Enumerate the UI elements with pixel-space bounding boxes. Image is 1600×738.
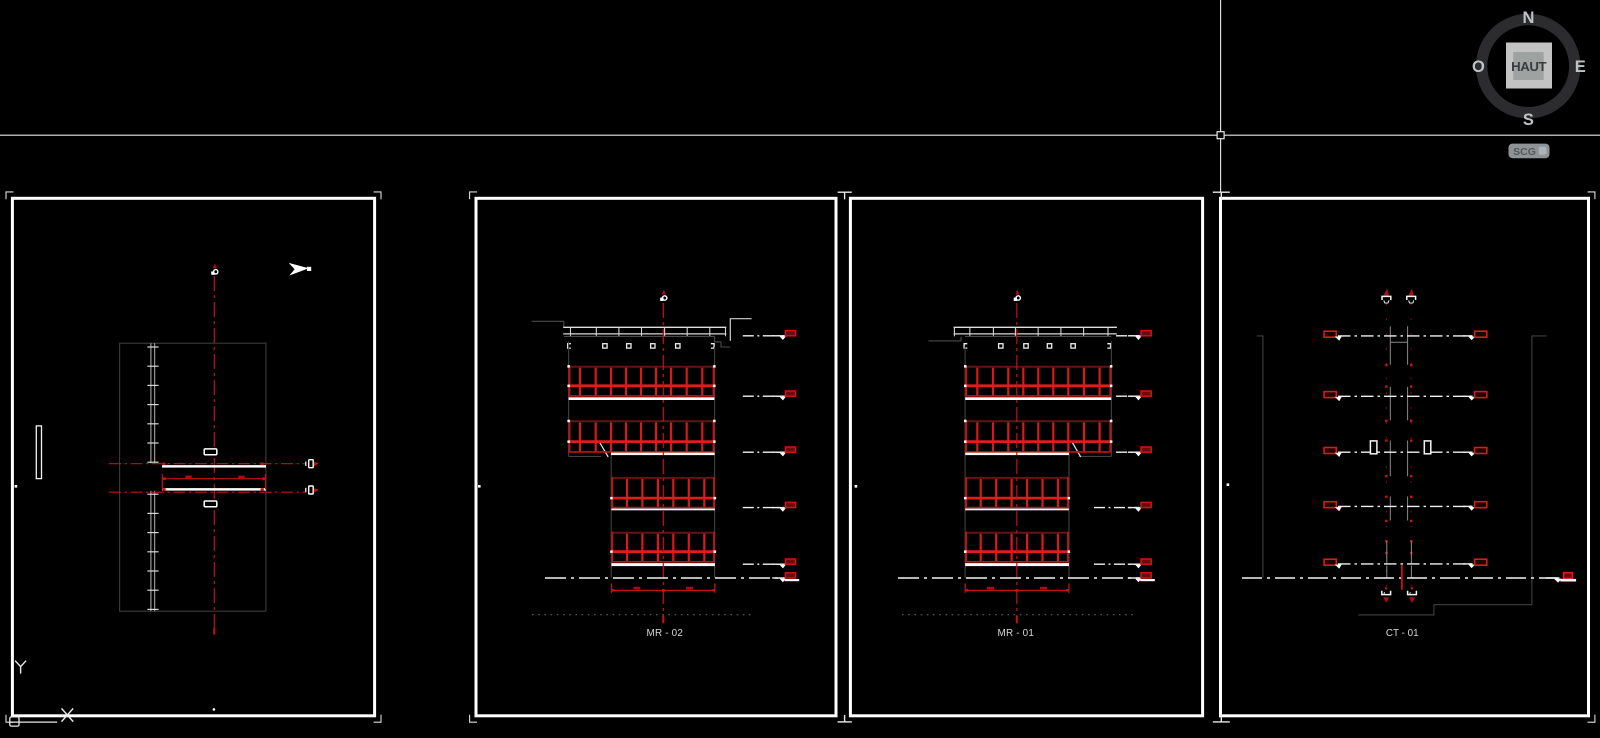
svg-text:SCG: SCG [1513, 146, 1536, 158]
svg-text:CT - 01: CT - 01 [1386, 628, 1419, 639]
svg-text:N: N [1522, 9, 1534, 27]
svg-text:O: O [1472, 58, 1485, 76]
svg-text:HAUT: HAUT [1511, 59, 1546, 74]
svg-text:MR - 02: MR - 02 [647, 628, 684, 639]
svg-text:E: E [1575, 58, 1586, 76]
svg-text:MR - 01: MR - 01 [998, 628, 1035, 639]
svg-text:S: S [1523, 111, 1534, 129]
